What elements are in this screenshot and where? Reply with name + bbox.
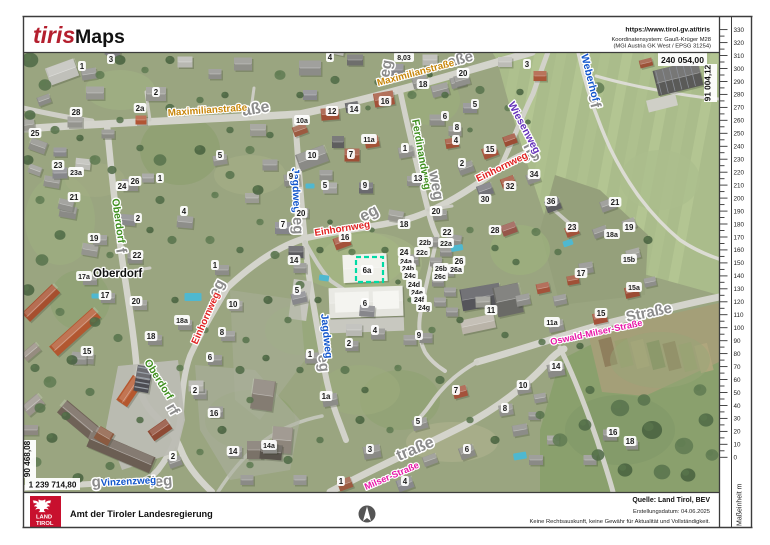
svg-text:15: 15 [83,347,92,356]
svg-text:100: 100 [734,325,745,332]
svg-text:16: 16 [381,97,390,106]
svg-text:18a: 18a [606,232,618,239]
svg-text:tiris: tiris [33,22,75,48]
svg-text:30: 30 [481,195,490,204]
svg-text:20: 20 [432,207,441,216]
svg-text:14a: 14a [263,443,275,450]
svg-text:5: 5 [473,100,478,109]
svg-text:15b: 15b [623,257,635,264]
svg-text:34: 34 [530,170,539,179]
svg-text:15a: 15a [628,285,640,292]
svg-text:10: 10 [229,300,238,309]
svg-text:23: 23 [568,223,577,232]
svg-text:36: 36 [547,197,556,206]
svg-text:23a: 23a [70,170,82,177]
svg-text:16: 16 [609,428,618,437]
svg-text:1: 1 [213,261,218,270]
svg-text:28: 28 [72,108,81,117]
svg-text:160: 160 [734,247,745,254]
svg-text:22b: 22b [419,240,431,247]
svg-text:300: 300 [734,66,745,73]
svg-text:320: 320 [734,40,745,47]
svg-text:26c: 26c [434,274,446,281]
svg-text:30: 30 [734,416,742,423]
svg-text:110: 110 [734,312,745,319]
svg-text:14: 14 [350,105,359,114]
svg-text:LAND: LAND [36,515,52,521]
svg-text:210: 210 [734,182,745,189]
svg-text:17: 17 [577,269,586,278]
svg-text:18: 18 [419,80,428,89]
svg-text:3: 3 [368,445,373,454]
svg-text:90: 90 [734,338,742,345]
svg-text:2: 2 [193,386,198,395]
svg-text:19: 19 [625,223,634,232]
svg-text:18: 18 [147,332,156,341]
svg-text:7: 7 [349,150,354,159]
svg-text:6a: 6a [363,266,372,275]
svg-text:11a: 11a [546,320,557,327]
svg-text:18: 18 [626,437,635,446]
svg-text:5: 5 [323,181,328,190]
svg-text:150: 150 [734,260,745,267]
svg-text:0: 0 [734,455,738,462]
svg-text:2: 2 [347,339,352,348]
svg-text:Koordinatensystem: Gauß-Krüger: Koordinatensystem: Gauß-Krüger M28 [611,37,711,43]
svg-text:2: 2 [171,452,176,461]
svg-text:290: 290 [734,79,745,86]
svg-text:22a: 22a [440,241,452,248]
svg-text:8: 8 [503,404,508,413]
svg-text:Quelle: Land Tirol, BEV: Quelle: Land Tirol, BEV [632,497,710,504]
svg-text:20: 20 [297,209,306,218]
svg-text:22c: 22c [416,250,428,257]
svg-text:16: 16 [210,409,219,418]
svg-text:10a: 10a [296,118,308,125]
svg-text:20: 20 [459,69,468,78]
svg-text:32: 32 [506,182,515,191]
svg-text:TIROL: TIROL [36,521,54,527]
svg-text:14: 14 [552,362,561,371]
svg-text:7: 7 [281,220,286,229]
svg-text:9: 9 [363,181,368,190]
svg-text:11a: 11a [363,137,374,144]
svg-text:24g: 24g [418,305,430,312]
svg-text:4: 4 [328,53,333,62]
svg-text:eg: eg [289,217,307,235]
svg-text:2: 2 [154,88,159,97]
svg-text:25: 25 [31,129,40,138]
svg-text:22: 22 [443,228,452,237]
svg-text:24: 24 [400,248,409,257]
svg-text:50: 50 [734,390,742,397]
svg-text:10: 10 [734,442,742,449]
svg-text:24c: 24c [404,273,416,280]
svg-text:1a: 1a [322,392,331,401]
svg-text:220: 220 [734,169,745,176]
svg-text:91 004,12: 91 004,12 [704,64,713,101]
svg-text:13: 13 [414,174,423,183]
svg-text:1: 1 [80,62,85,71]
svg-text:11: 11 [487,306,496,315]
svg-text:26a: 26a [450,267,462,274]
svg-text:190: 190 [734,208,745,215]
svg-text:80: 80 [734,351,742,358]
svg-text:18a: 18a [176,318,188,325]
svg-text:14: 14 [290,256,299,265]
svg-text:5: 5 [295,286,300,295]
svg-text:16: 16 [341,233,350,242]
svg-text:9: 9 [289,172,294,181]
svg-text:20: 20 [132,297,141,306]
svg-text:23: 23 [54,161,63,170]
svg-text:Erstellungsdatum: 04.06.2025: Erstellungsdatum: 04.06.2025 [633,509,710,515]
svg-text:18: 18 [400,220,409,229]
svg-text:5: 5 [416,417,421,426]
svg-text:https://www.tirol.gv.at/tiris: https://www.tirol.gv.at/tiris [625,27,710,34]
svg-text:310: 310 [734,53,745,60]
svg-text:15: 15 [486,145,495,154]
svg-text:2a: 2a [136,104,145,113]
svg-text:260: 260 [734,118,745,125]
svg-text:2: 2 [136,214,141,223]
svg-text:6: 6 [208,353,213,362]
svg-text:8: 8 [455,123,460,132]
svg-text:10: 10 [519,381,528,390]
svg-text:3: 3 [109,55,114,64]
svg-text:1: 1 [158,174,163,183]
svg-text:120: 120 [734,299,745,306]
svg-text:280: 280 [734,92,745,99]
svg-text:8: 8 [220,328,225,337]
svg-text:17a: 17a [78,274,90,281]
svg-text:5: 5 [218,151,223,160]
svg-text:8,03: 8,03 [397,55,411,62]
svg-text:1 239 714,80: 1 239 714,80 [29,481,77,490]
svg-text:20: 20 [734,429,742,436]
svg-text:140: 140 [734,273,745,280]
svg-text:10: 10 [308,151,317,160]
svg-text:26: 26 [131,177,140,186]
svg-text:Keine Rechtsauskunft, keine Ge: Keine Rechtsauskunft, keine Gewähr für A… [530,519,711,525]
svg-text:24: 24 [118,182,127,191]
svg-text:28: 28 [491,226,500,235]
svg-text:90 468,08: 90 468,08 [23,440,32,477]
svg-text:1: 1 [339,477,344,486]
svg-text:9: 9 [417,331,422,340]
svg-text:7: 7 [454,386,459,395]
svg-text:4: 4 [403,477,408,486]
svg-text:6: 6 [443,112,448,121]
svg-text:22: 22 [133,251,142,260]
svg-text:1: 1 [308,350,313,359]
svg-text:170: 170 [734,234,745,241]
svg-text:6: 6 [465,445,470,454]
svg-text:15: 15 [597,309,606,318]
svg-text:4: 4 [373,326,378,335]
svg-text:Amt der Tiroler Landesregierun: Amt der Tiroler Landesregierung [70,509,213,519]
svg-text:240: 240 [734,144,745,151]
svg-text:21: 21 [70,193,79,202]
svg-text:Oberdorf: Oberdorf [93,268,142,280]
svg-text:21: 21 [611,198,620,207]
svg-text:6: 6 [363,299,368,308]
svg-text:60: 60 [734,377,742,384]
svg-text:Maps: Maps [75,26,125,48]
svg-text:Maßeinheit m: Maßeinheit m [737,483,744,526]
svg-text:3: 3 [525,60,530,69]
svg-text:130: 130 [734,286,745,293]
svg-text:180: 180 [734,221,745,228]
svg-text:2: 2 [460,159,465,168]
svg-text:230: 230 [734,157,745,164]
svg-text:14: 14 [229,447,238,456]
svg-text:17: 17 [101,291,110,300]
svg-text:12: 12 [328,107,337,116]
svg-text:250: 250 [734,131,745,138]
svg-text:330: 330 [734,27,745,34]
svg-text:40: 40 [734,403,742,410]
svg-text:270: 270 [734,105,745,112]
svg-text:4: 4 [454,136,459,145]
svg-text:70: 70 [734,364,742,371]
svg-text:(MGI Austria GK West / EPSG 31: (MGI Austria GK West / EPSG 31254) [613,44,711,50]
svg-text:19: 19 [90,234,99,243]
svg-text:1: 1 [403,144,408,153]
svg-text:4: 4 [182,207,187,216]
svg-text:200: 200 [734,195,745,202]
svg-text:240 054,00: 240 054,00 [661,55,704,65]
